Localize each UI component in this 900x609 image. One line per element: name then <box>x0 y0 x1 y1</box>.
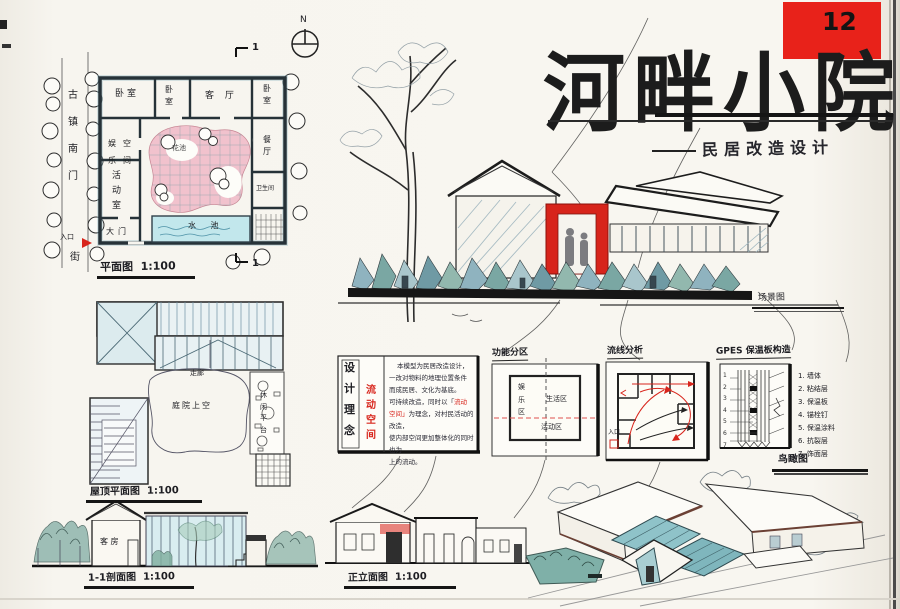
circulation-entrance: 入口 <box>608 430 620 437</box>
concept-paragraph: 本模型为民居改造设计， 一改对物料的地理位置条件 而成民居、文化为基底。 可持续… <box>389 360 477 468</box>
zone-entertainment: 娱 乐 区 <box>518 384 525 417</box>
room-bedroom2: 卧 室 <box>165 86 173 107</box>
room-dining: 餐 厅 <box>263 136 271 157</box>
concept-title: 设 计 理 念 <box>344 362 355 437</box>
zone-activity: 活动区 <box>541 424 562 432</box>
street-suffix: 街 <box>70 252 80 263</box>
title-underline-heavy <box>655 113 893 117</box>
elevation-drawing <box>325 504 558 563</box>
room-gate: 大门 <box>106 228 130 237</box>
axon-caption-rule2 <box>774 473 868 475</box>
room-bedroom3: 卧 室 <box>263 85 271 106</box>
floor-plan-caption: 平面图 1:100 <box>100 260 176 274</box>
title-char-2: 畔 <box>633 23 715 148</box>
street-name: 古 镇 南 门 <box>68 90 78 182</box>
subtitle: 民居改造设计 <box>702 139 834 159</box>
pool-label: 水 池 <box>188 222 225 231</box>
title-char-4: 院 <box>813 23 895 148</box>
circulation-drawing <box>606 362 708 460</box>
room-activity: 活 动 室 <box>112 172 121 212</box>
axon-caption: 鸟瞰图 <box>778 454 808 466</box>
zone-living: 生活区 <box>546 396 567 404</box>
floor-plan-caption-rule <box>97 276 195 279</box>
roof-plan-caption-rule <box>86 500 202 503</box>
entrance-label: 入口 <box>60 234 74 242</box>
wall-detail-drawing <box>720 364 790 448</box>
elevation-caption: 正立面图 1:100 <box>348 571 427 584</box>
roof-courtyard-label: 庭院上空 <box>172 402 212 411</box>
roof-terrace-label: 休 闲 平 台 <box>260 392 267 435</box>
scene-caption-rule2 <box>754 311 844 312</box>
zoning-drawing <box>492 358 598 462</box>
wall-detail-left-numbers: 1 2 3 4 5 6 7 <box>723 373 727 449</box>
title-char-1: 河 <box>543 23 625 148</box>
scene-caption-rule1 <box>752 307 844 309</box>
scene-caption: 场景图 <box>758 294 785 304</box>
concept-keyword: 流 动 空 间 <box>366 385 376 441</box>
room-bath: 卫生间 <box>256 186 274 193</box>
flower-bed-label: 花池 <box>172 145 186 153</box>
room-living: 客 厅 <box>205 92 238 102</box>
title-underline-light <box>548 120 893 122</box>
wall-detail-caption: GPES 保温板构造 <box>716 346 791 359</box>
section-mark-bottom: 1 <box>252 258 259 269</box>
presentation-board: { "board": { "title_chars": ["河","畔","小"… <box>0 0 900 609</box>
elevation-caption-rule <box>344 586 456 589</box>
room-leisure: 娱 乐 空 间 <box>108 138 131 166</box>
roof-plan-caption: 屋顶平面图 1:100 <box>90 485 179 498</box>
section-mark-top: 1 <box>252 42 259 53</box>
section-drawing <box>32 501 318 566</box>
subtitle-dash <box>652 150 696 152</box>
page-title: 河 畔 小 院 <box>543 26 895 145</box>
circulation-caption: 流线分析 <box>607 347 643 360</box>
north-label: N <box>300 16 307 26</box>
zoning-caption: 功能分区 <box>492 349 528 362</box>
axon-caption-rule1 <box>772 469 868 472</box>
section-caption-rule <box>84 586 194 589</box>
section-caption: 1-1剖面图 1:100 <box>88 571 175 584</box>
roof-corridor-label: 走廊 <box>190 370 204 378</box>
axon-drawing <box>526 470 893 606</box>
room-bedroom1: 卧室 <box>115 90 139 100</box>
wall-detail-layer-list: 1. 墙体 2. 粘结层 3. 保温板 4. 锚栓钉 5. 保温涂料 6. 抗裂… <box>798 370 835 461</box>
title-char-3: 小 <box>723 23 805 148</box>
guest-room-label: 客 房 <box>100 538 119 547</box>
